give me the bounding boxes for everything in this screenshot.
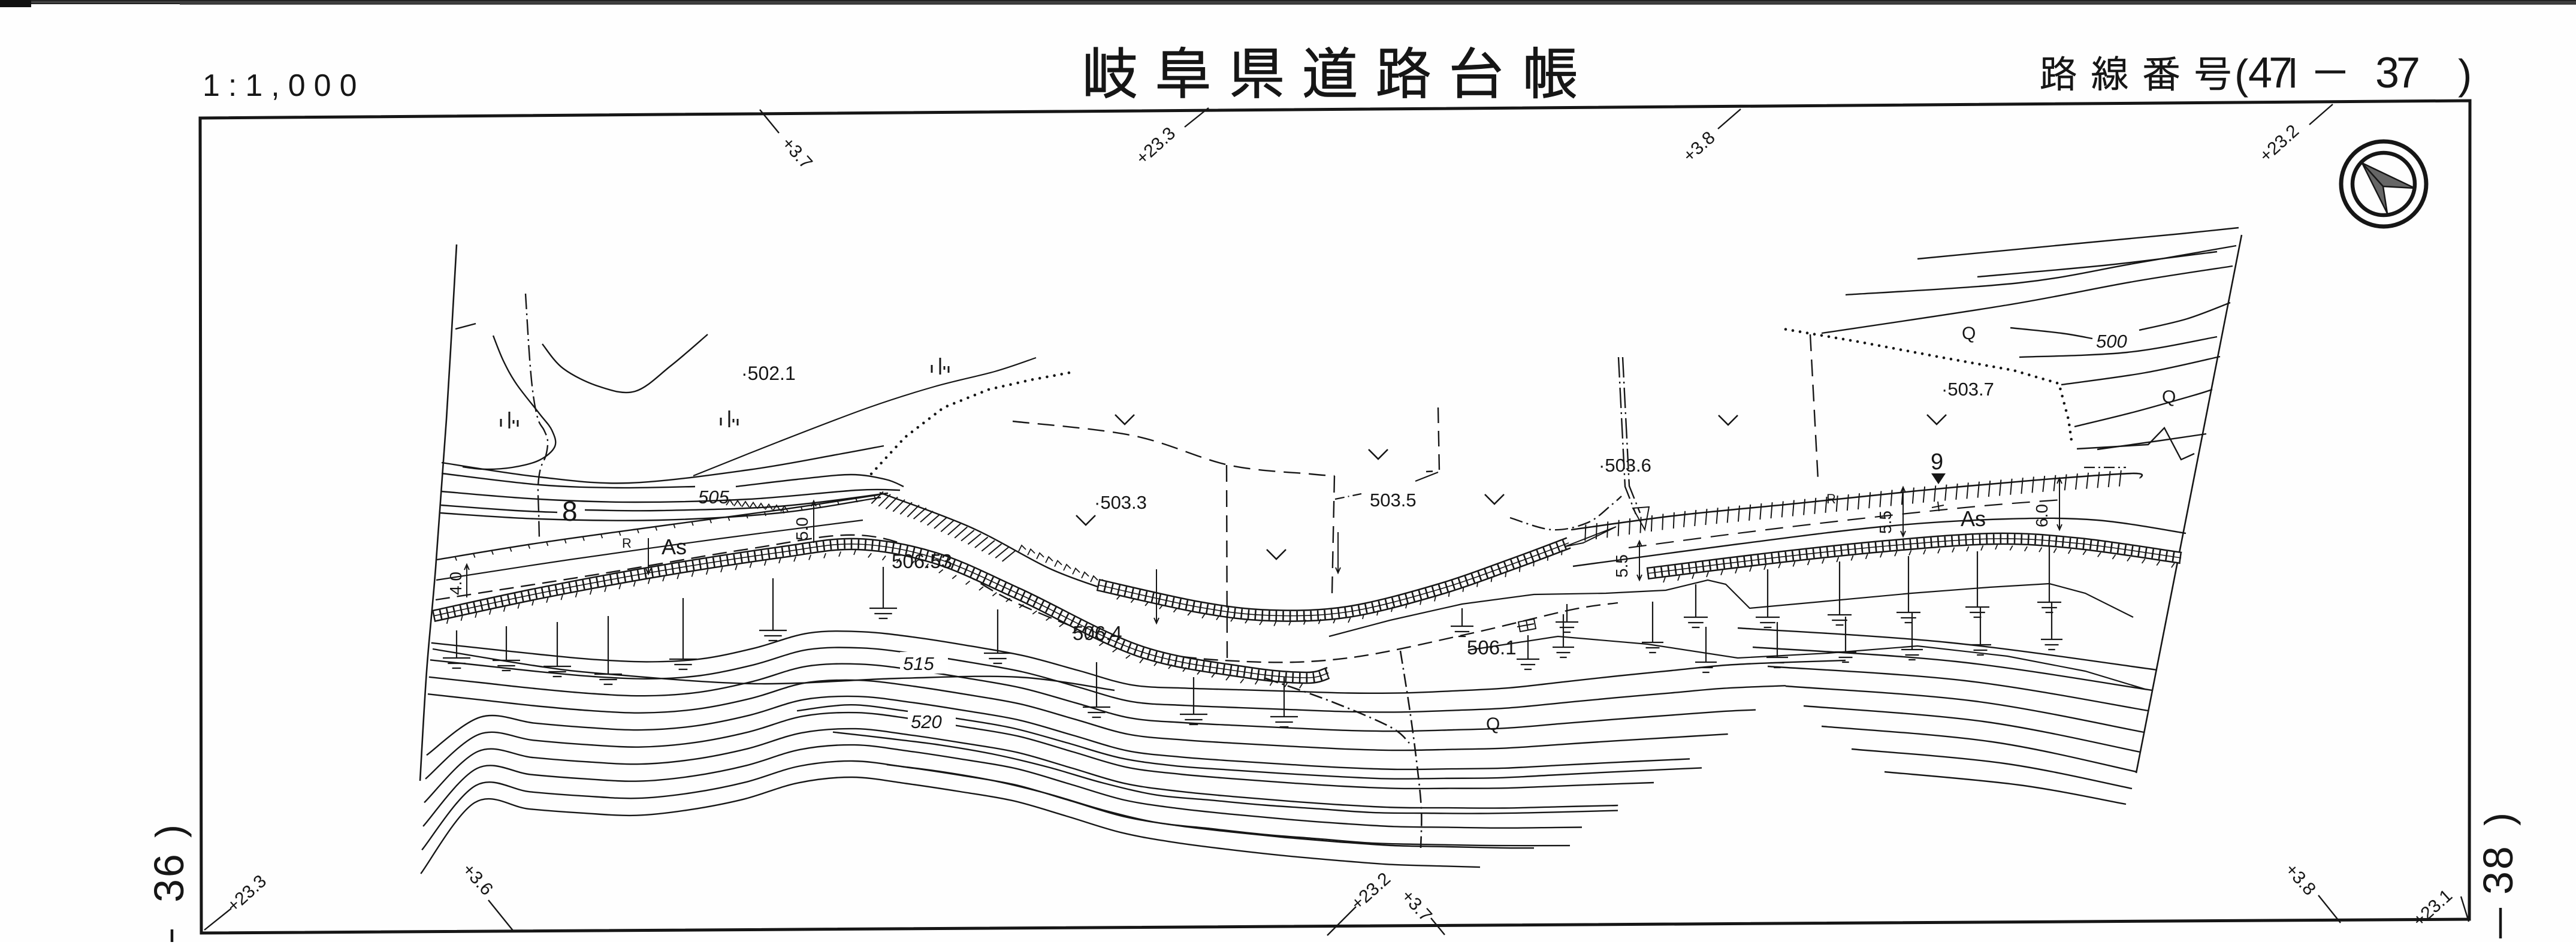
svg-text:As: As [1961, 506, 1986, 531]
svg-text:503.5: 503.5 [1370, 490, 1417, 511]
svg-text:1:1,000: 1:1,000 [203, 68, 366, 103]
svg-text:506.53: 506.53 [892, 550, 952, 572]
svg-text:R: R [622, 536, 632, 551]
svg-text:500: 500 [2096, 331, 2127, 352]
svg-text:Q: Q [1486, 714, 1500, 734]
svg-text:6.0: 6.0 [2033, 504, 2051, 527]
svg-text:5.5: 5.5 [1612, 554, 1631, 578]
svg-text:9: 9 [1931, 449, 1943, 475]
svg-text:Q: Q [1962, 324, 1976, 343]
svg-text:506.4: 506.4 [1073, 622, 1122, 644]
svg-text:(: ( [2234, 51, 2248, 98]
svg-text:7: 7 [2396, 49, 2420, 97]
svg-text:5.0: 5.0 [793, 517, 811, 541]
svg-text:38: 38 [2475, 844, 2521, 895]
svg-text:505: 505 [698, 487, 729, 508]
svg-text:4.0: 4.0 [446, 572, 465, 595]
svg-text:·503.7: ·503.7 [1941, 379, 1994, 400]
svg-text:506.1: 506.1 [1467, 636, 1517, 659]
svg-text:As: As [662, 535, 687, 559]
svg-text:36: 36 [146, 852, 192, 902]
svg-text:520: 520 [911, 711, 942, 732]
svg-text:·503.6: ·503.6 [1599, 455, 1651, 476]
svg-text:): ) [2477, 813, 2521, 826]
svg-text:8: 8 [562, 496, 578, 527]
svg-text:515: 515 [903, 653, 934, 674]
svg-text:·502.1: ·502.1 [741, 363, 796, 384]
svg-text:·503.3: ·503.3 [1094, 492, 1147, 513]
svg-text:Q: Q [2162, 387, 2176, 407]
svg-text:R: R [1826, 491, 1836, 506]
svg-text:l: l [2288, 51, 2297, 96]
svg-text:): ) [2458, 51, 2472, 98]
svg-text:): ) [147, 825, 192, 838]
svg-text:5.5: 5.5 [1876, 511, 1895, 534]
